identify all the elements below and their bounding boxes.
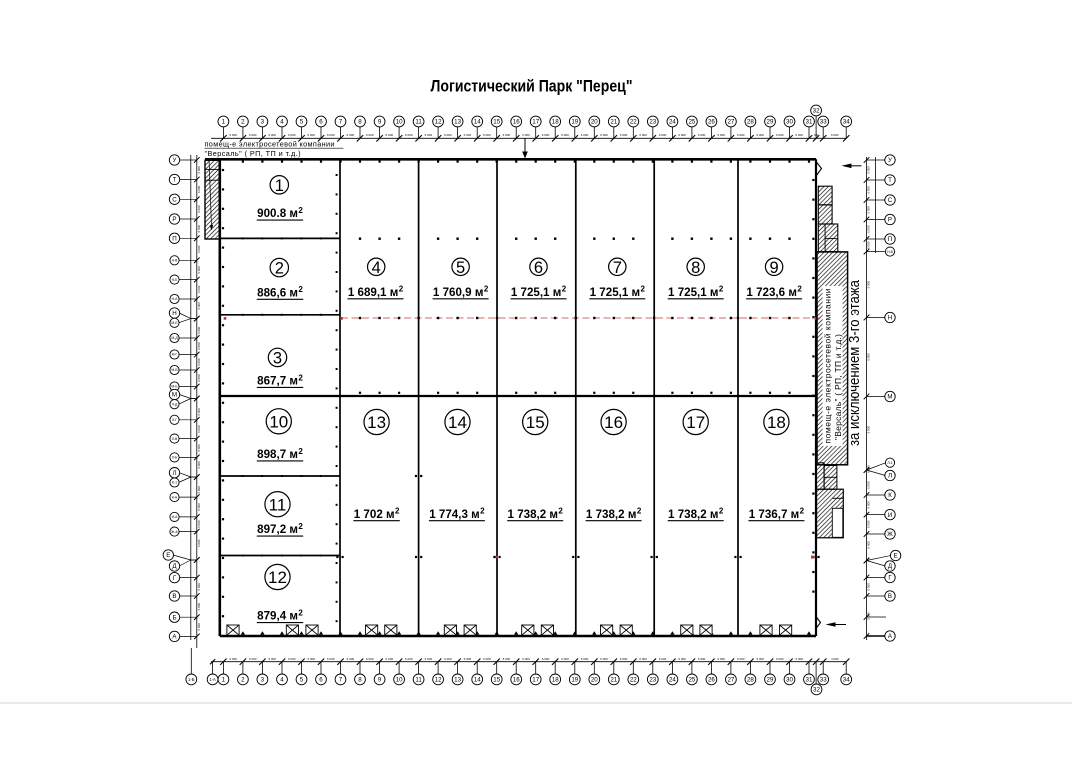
svg-text:17: 17 bbox=[532, 119, 539, 126]
svg-text:26: 26 bbox=[708, 677, 715, 684]
svg-text:6 000: 6 000 bbox=[866, 225, 870, 233]
svg-text:И: И bbox=[888, 512, 892, 519]
svg-text:М: М bbox=[172, 392, 177, 399]
svg-text:"Версаль" ( РП, ТП и т.д.): "Версаль" ( РП, ТП и т.д.) bbox=[205, 149, 301, 158]
svg-text:К: К bbox=[888, 492, 892, 499]
svg-text:6 000: 6 000 bbox=[659, 133, 667, 137]
svg-text:1-Б: 1-Б bbox=[188, 677, 195, 682]
svg-text:6 000: 6 000 bbox=[197, 623, 201, 631]
svg-text:6 000: 6 000 bbox=[386, 657, 394, 661]
svg-text:26: 26 bbox=[708, 119, 715, 126]
svg-text:6 000: 6 000 bbox=[866, 206, 870, 214]
svg-text:6 000: 6 000 bbox=[229, 133, 237, 137]
svg-text:6 000: 6 000 bbox=[831, 133, 839, 137]
svg-text:6 000: 6 000 bbox=[197, 539, 201, 547]
svg-text:Л-Б: Л-Б bbox=[172, 456, 178, 460]
svg-text:13: 13 bbox=[367, 413, 386, 432]
svg-text:1 725,1 м2: 1 725,1 м2 bbox=[668, 285, 724, 299]
svg-text:1 736,7 м2: 1 736,7 м2 bbox=[749, 507, 805, 521]
svg-text:27: 27 bbox=[727, 677, 734, 684]
svg-text:6 000: 6 000 bbox=[522, 657, 530, 661]
svg-text:помещ-е электросетевой компани: помещ-е электросетевой компании bbox=[205, 140, 335, 149]
svg-text:886,6 м2: 886,6 м2 bbox=[257, 285, 303, 299]
svg-text:Н-В: Н-В bbox=[887, 250, 894, 254]
svg-text:8: 8 bbox=[358, 677, 362, 684]
svg-text:6 000: 6 000 bbox=[483, 657, 491, 661]
svg-text:6 000: 6 000 bbox=[288, 657, 296, 661]
svg-text:6 000: 6 000 bbox=[249, 133, 257, 137]
svg-text:17: 17 bbox=[686, 413, 705, 432]
svg-text:1 702 м2: 1 702 м2 bbox=[354, 507, 400, 521]
svg-text:6 000: 6 000 bbox=[197, 486, 201, 494]
svg-text:6 000: 6 000 bbox=[197, 266, 201, 274]
svg-text:6 000: 6 000 bbox=[197, 326, 201, 334]
svg-text:21: 21 bbox=[610, 119, 617, 126]
svg-text:6: 6 bbox=[534, 259, 543, 277]
svg-text:879,4 м2: 879,4 м2 bbox=[257, 609, 303, 623]
svg-text:6 000: 6 000 bbox=[866, 281, 870, 289]
svg-text:28: 28 bbox=[747, 677, 754, 684]
svg-text:19: 19 bbox=[571, 677, 578, 684]
svg-text:6 000: 6 000 bbox=[307, 133, 315, 137]
svg-text:4: 4 bbox=[372, 259, 381, 277]
svg-text:14: 14 bbox=[474, 119, 481, 126]
svg-text:20: 20 bbox=[591, 677, 598, 684]
svg-text:1 725,1 м2: 1 725,1 м2 bbox=[590, 285, 646, 299]
svg-text:20: 20 bbox=[591, 119, 598, 126]
svg-text:6 000: 6 000 bbox=[581, 133, 589, 137]
svg-text:13: 13 bbox=[454, 677, 461, 684]
svg-text:1-А: 1-А bbox=[209, 677, 216, 682]
svg-text:11: 11 bbox=[269, 495, 287, 514]
svg-text:6 000: 6 000 bbox=[197, 461, 201, 469]
svg-text:897,2 м2: 897,2 м2 bbox=[257, 522, 303, 536]
svg-text:Т: Т bbox=[173, 177, 177, 184]
svg-text:6 000: 6 000 bbox=[756, 657, 764, 661]
svg-text:П: П bbox=[172, 236, 176, 243]
svg-text:6 000: 6 000 bbox=[464, 657, 472, 661]
svg-text:8: 8 bbox=[691, 259, 700, 277]
svg-text:6 000: 6 000 bbox=[717, 133, 725, 137]
svg-text:4 000: 4 000 bbox=[831, 657, 839, 661]
svg-text:867,7 м2: 867,7 м2 bbox=[257, 373, 303, 387]
svg-text:6 000: 6 000 bbox=[197, 285, 201, 293]
svg-text:Е: Е bbox=[894, 553, 898, 560]
svg-text:К-А: К-А bbox=[172, 495, 178, 499]
svg-text:6 000: 6 000 bbox=[197, 444, 201, 452]
svg-text:6 000: 6 000 bbox=[483, 133, 491, 137]
svg-text:6 000: 6 000 bbox=[425, 133, 433, 137]
svg-text:6 000: 6 000 bbox=[197, 342, 201, 350]
svg-text:3: 3 bbox=[273, 349, 282, 367]
svg-text:6 000: 6 000 bbox=[678, 657, 686, 661]
svg-text:11: 11 bbox=[415, 677, 422, 684]
svg-text:6 000: 6 000 bbox=[866, 166, 870, 174]
svg-text:6 000: 6 000 bbox=[542, 657, 550, 661]
svg-text:3: 3 bbox=[261, 677, 265, 684]
svg-text:6: 6 bbox=[319, 119, 323, 126]
svg-text:24: 24 bbox=[669, 119, 676, 126]
svg-text:6 000: 6 000 bbox=[366, 133, 374, 137]
svg-text:В: В bbox=[172, 593, 176, 600]
svg-text:34: 34 bbox=[843, 119, 850, 126]
svg-text:12: 12 bbox=[435, 677, 442, 684]
svg-text:Н-А: Н-А bbox=[172, 297, 179, 301]
svg-text:6 000: 6 000 bbox=[866, 501, 870, 509]
svg-text:6 000: 6 000 bbox=[327, 133, 335, 137]
svg-text:6 000: 6 000 bbox=[347, 657, 355, 661]
svg-text:13: 13 bbox=[454, 119, 461, 126]
svg-text:1 725,1 м2: 1 725,1 м2 bbox=[511, 285, 567, 299]
svg-text:18: 18 bbox=[767, 413, 786, 432]
svg-text:6 000: 6 000 bbox=[197, 245, 201, 253]
svg-text:Л-1: Л-1 bbox=[887, 461, 892, 465]
svg-text:Логистический Парк "Перец": Логистический Парк "Перец" bbox=[431, 78, 633, 96]
svg-text:1: 1 bbox=[222, 119, 226, 126]
svg-text:6 000: 6 000 bbox=[197, 205, 201, 213]
svg-text:Р: Р bbox=[888, 217, 892, 224]
svg-text:за исключением 3-го этажа: за исключением 3-го этажа bbox=[846, 279, 863, 446]
svg-text:16: 16 bbox=[513, 677, 520, 684]
svg-text:29: 29 bbox=[767, 677, 774, 684]
svg-text:М-Е: М-Е bbox=[171, 321, 178, 325]
svg-text:6 000: 6 000 bbox=[678, 133, 686, 137]
svg-text:6 000: 6 000 bbox=[197, 225, 201, 233]
svg-text:9: 9 bbox=[378, 119, 382, 126]
svg-text:6 000: 6 000 bbox=[197, 425, 201, 433]
svg-text:6 000: 6 000 bbox=[698, 133, 706, 137]
svg-text:6 000: 6 000 bbox=[405, 657, 413, 661]
svg-text:1 738,2 м2: 1 738,2 м2 bbox=[586, 507, 642, 521]
svg-text:6 000: 6 000 bbox=[659, 657, 667, 661]
svg-text:11: 11 bbox=[415, 119, 422, 126]
svg-text:6 000: 6 000 bbox=[249, 657, 257, 661]
svg-text:8: 8 bbox=[358, 119, 362, 126]
svg-text:У: У bbox=[888, 157, 892, 164]
svg-text:С: С bbox=[888, 197, 893, 204]
svg-text:6 000: 6 000 bbox=[197, 408, 201, 416]
svg-text:2: 2 bbox=[241, 119, 245, 126]
svg-text:29: 29 bbox=[767, 119, 774, 126]
svg-text:25: 25 bbox=[688, 119, 695, 126]
svg-text:Ж-А: Ж-А bbox=[171, 530, 178, 534]
svg-text:Ж: Ж bbox=[887, 531, 893, 538]
svg-text:помещ-е электросетевой компани: помещ-е электросетевой компании bbox=[823, 288, 833, 443]
svg-text:6 000: 6 000 bbox=[866, 353, 870, 361]
svg-text:М-В: М-В bbox=[171, 368, 178, 372]
svg-text:М: М bbox=[887, 394, 892, 401]
svg-text:6 000: 6 000 bbox=[503, 657, 511, 661]
svg-text:6 000: 6 000 bbox=[366, 657, 374, 661]
svg-text:6 000: 6 000 bbox=[444, 133, 452, 137]
svg-text:6 000: 6 000 bbox=[795, 133, 803, 137]
svg-text:6 000: 6 000 bbox=[268, 657, 276, 661]
svg-text:6 000: 6 000 bbox=[197, 583, 201, 591]
svg-text:6 000: 6 000 bbox=[503, 133, 511, 137]
svg-text:6 000: 6 000 bbox=[386, 133, 394, 137]
svg-text:5: 5 bbox=[300, 677, 304, 684]
svg-text:6 000: 6 000 bbox=[464, 133, 472, 137]
svg-text:6 0: 6 0 bbox=[814, 133, 819, 137]
svg-text:6 000: 6 000 bbox=[197, 603, 201, 611]
svg-text:7: 7 bbox=[339, 119, 343, 126]
svg-text:14: 14 bbox=[474, 677, 481, 684]
svg-text:10: 10 bbox=[396, 119, 403, 126]
svg-text:6 000: 6 000 bbox=[639, 133, 647, 137]
svg-text:15: 15 bbox=[526, 413, 545, 432]
svg-text:6 000: 6 000 bbox=[717, 657, 725, 661]
svg-text:6 000: 6 000 bbox=[197, 166, 201, 174]
svg-text:6 000: 6 000 bbox=[307, 657, 315, 661]
svg-text:9: 9 bbox=[378, 677, 382, 684]
svg-text:6 000: 6 000 bbox=[425, 657, 433, 661]
svg-text:У: У bbox=[173, 157, 177, 164]
svg-text:6 000: 6 000 bbox=[347, 133, 355, 137]
svg-text:2: 2 bbox=[275, 260, 284, 278]
svg-text:Т: Т bbox=[888, 177, 892, 184]
svg-text:6 000: 6 000 bbox=[866, 541, 870, 549]
svg-text:6 000: 6 000 bbox=[639, 657, 647, 661]
svg-text:6 000: 6 000 bbox=[542, 133, 550, 137]
svg-text:6 000: 6 000 bbox=[444, 657, 452, 661]
svg-text:24: 24 bbox=[669, 677, 676, 684]
svg-text:7: 7 bbox=[339, 677, 343, 684]
svg-text:16: 16 bbox=[513, 119, 520, 126]
svg-text:18: 18 bbox=[552, 119, 559, 126]
svg-text:14: 14 bbox=[448, 413, 467, 432]
svg-text:7: 7 bbox=[613, 259, 622, 277]
svg-text:6 000: 6 000 bbox=[197, 503, 201, 511]
svg-text:898,7 м2: 898,7 м2 bbox=[257, 447, 303, 461]
svg-text:6 000: 6 000 bbox=[866, 241, 870, 249]
svg-text:22: 22 bbox=[630, 119, 637, 126]
svg-text:33: 33 bbox=[820, 119, 827, 126]
svg-text:Б: Б bbox=[172, 614, 176, 621]
svg-text:М-Б: М-Б bbox=[171, 385, 178, 389]
svg-text:1: 1 bbox=[275, 177, 284, 195]
svg-text:6 000: 6 000 bbox=[197, 520, 201, 528]
svg-text:28: 28 bbox=[747, 119, 754, 126]
svg-text:Л: Л bbox=[172, 470, 176, 477]
svg-text:Е: Е bbox=[166, 552, 170, 559]
svg-text:5: 5 bbox=[456, 259, 465, 277]
svg-text:6 000: 6 000 bbox=[581, 657, 589, 661]
svg-text:6 000: 6 000 bbox=[197, 374, 201, 382]
svg-text:1 689,1 м2: 1 689,1 м2 bbox=[348, 285, 404, 299]
svg-text:6 000: 6 000 bbox=[866, 426, 870, 434]
svg-text:6: 6 bbox=[319, 677, 323, 684]
svg-text:10: 10 bbox=[396, 677, 403, 684]
svg-text:6 000: 6 000 bbox=[268, 133, 276, 137]
svg-text:19: 19 bbox=[571, 119, 578, 126]
svg-text:30: 30 bbox=[786, 119, 793, 126]
svg-text:12: 12 bbox=[435, 119, 442, 126]
svg-text:6 000: 6 000 bbox=[327, 657, 335, 661]
svg-text:6 000: 6 000 bbox=[405, 133, 413, 137]
svg-text:6 000: 6 000 bbox=[866, 520, 870, 528]
svg-text:К-1: К-1 bbox=[172, 481, 177, 485]
svg-text:6 000: 6 000 bbox=[776, 133, 784, 137]
svg-text:5: 5 bbox=[300, 119, 304, 126]
svg-text:22: 22 bbox=[630, 677, 637, 684]
svg-text:6 000: 6 000 bbox=[795, 657, 803, 661]
svg-text:Л-В: Л-В bbox=[172, 437, 178, 441]
svg-text:6 000: 6 000 bbox=[288, 133, 296, 137]
svg-text:6 000: 6 000 bbox=[866, 583, 870, 591]
svg-text:1 774,3 м2: 1 774,3 м2 bbox=[429, 507, 485, 521]
svg-text:3: 3 bbox=[261, 119, 265, 126]
svg-text:12: 12 bbox=[268, 568, 287, 587]
svg-text:15: 15 bbox=[493, 119, 500, 126]
svg-text:"Версаль" ( РП, ТП и т.д.): "Версаль" ( РП, ТП и т.д.) bbox=[833, 334, 843, 440]
svg-text:34: 34 bbox=[843, 677, 850, 684]
svg-text:С: С bbox=[172, 197, 177, 204]
svg-text:18: 18 bbox=[552, 677, 559, 684]
svg-text:Л: Л bbox=[888, 473, 892, 480]
svg-text:6 000: 6 000 bbox=[620, 657, 628, 661]
svg-text:6 000: 6 000 bbox=[229, 657, 237, 661]
svg-text:6 000: 6 000 bbox=[737, 133, 745, 137]
svg-text:6 000: 6 000 bbox=[600, 657, 608, 661]
svg-text:1 760,9 м2: 1 760,9 м2 bbox=[433, 285, 489, 299]
svg-text:31: 31 bbox=[806, 677, 813, 684]
svg-text:6 000: 6 000 bbox=[698, 657, 706, 661]
svg-text:25: 25 bbox=[688, 677, 695, 684]
svg-text:4: 4 bbox=[280, 677, 284, 684]
svg-text:4: 4 bbox=[280, 119, 284, 126]
svg-text:6 000: 6 000 bbox=[600, 133, 608, 137]
svg-text:Л-Д: Л-Д bbox=[172, 402, 178, 406]
svg-text:6 000: 6 000 bbox=[866, 612, 870, 620]
svg-text:6 000: 6 000 bbox=[522, 133, 530, 137]
svg-text:1 738,2 м2: 1 738,2 м2 bbox=[668, 507, 724, 521]
svg-text:17: 17 bbox=[532, 677, 539, 684]
svg-text:Н: Н bbox=[172, 310, 176, 317]
svg-text:900.8 м2: 900.8 м2 bbox=[257, 206, 303, 220]
svg-text:21: 21 bbox=[610, 677, 617, 684]
svg-text:6 000: 6 000 bbox=[561, 133, 569, 137]
svg-text:6 000: 6 000 bbox=[866, 186, 870, 194]
svg-text:6 000: 6 000 bbox=[197, 358, 201, 366]
svg-text:10: 10 bbox=[269, 413, 288, 432]
svg-text:27: 27 bbox=[727, 119, 734, 126]
svg-text:Н: Н bbox=[888, 315, 892, 322]
svg-text:32: 32 bbox=[813, 108, 820, 115]
svg-text:6 000: 6 000 bbox=[197, 185, 201, 193]
svg-text:16: 16 bbox=[604, 413, 623, 432]
svg-text:И-А: И-А bbox=[172, 515, 179, 519]
svg-text:23: 23 bbox=[649, 119, 656, 126]
svg-text:15: 15 bbox=[493, 677, 500, 684]
svg-text:В: В bbox=[888, 593, 892, 600]
svg-text:1 738,2 м2: 1 738,2 м2 bbox=[508, 507, 564, 521]
svg-text:6 000: 6 000 bbox=[756, 133, 764, 137]
svg-text:6 000: 6 000 bbox=[866, 481, 870, 489]
svg-text:6 000: 6 000 bbox=[866, 465, 870, 473]
svg-text:6 000: 6 000 bbox=[561, 657, 569, 661]
svg-text:32: 32 bbox=[813, 687, 820, 694]
svg-text:2: 2 bbox=[241, 677, 245, 684]
svg-text:30: 30 bbox=[786, 677, 793, 684]
svg-text:1: 1 bbox=[222, 677, 226, 684]
svg-text:М-Д: М-Д bbox=[171, 336, 178, 340]
svg-text:Н-Б: Н-Б bbox=[172, 278, 179, 282]
svg-text:1 723,6 м2: 1 723,6 м2 bbox=[746, 285, 802, 299]
svg-text:Л-Г: Л-Г bbox=[172, 418, 177, 422]
svg-text:33: 33 bbox=[820, 677, 827, 684]
svg-text:Н-В: Н-В bbox=[172, 259, 179, 263]
svg-text:М-Г: М-Г bbox=[172, 353, 178, 357]
svg-text:Р: Р bbox=[172, 216, 176, 223]
svg-text:23: 23 bbox=[649, 677, 656, 684]
svg-text:6 000: 6 000 bbox=[197, 302, 201, 310]
svg-text:6 000: 6 000 bbox=[620, 133, 628, 137]
svg-text:П: П bbox=[888, 236, 892, 243]
svg-text:6 000: 6 000 bbox=[737, 657, 745, 661]
svg-text:6 000: 6 000 bbox=[776, 657, 784, 661]
svg-text:9: 9 bbox=[770, 259, 779, 277]
svg-text:31: 31 bbox=[806, 119, 813, 126]
